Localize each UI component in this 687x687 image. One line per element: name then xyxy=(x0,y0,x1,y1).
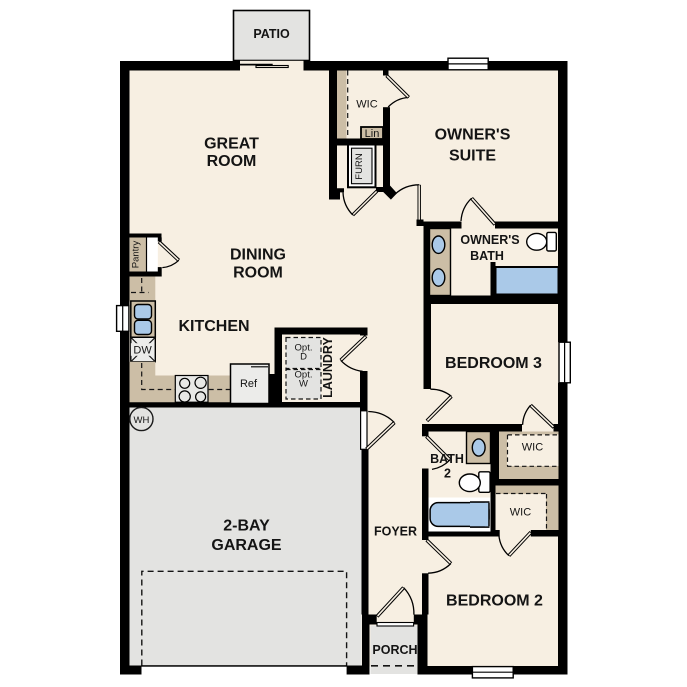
svg-text:D: D xyxy=(300,352,307,363)
svg-text:LAUNDRY: LAUNDRY xyxy=(321,337,335,398)
svg-text:FOYER: FOYER xyxy=(374,525,417,539)
svg-text:W: W xyxy=(299,379,308,390)
svg-text:BEDROOM 3: BEDROOM 3 xyxy=(445,355,542,372)
svg-text:KITCHEN: KITCHEN xyxy=(178,318,249,335)
svg-text:ROOM: ROOM xyxy=(233,265,283,282)
svg-text:ROOM: ROOM xyxy=(207,153,257,170)
svg-text:PATIO: PATIO xyxy=(253,27,290,41)
svg-text:WIC: WIC xyxy=(510,507,531,519)
svg-text:Ref: Ref xyxy=(240,378,258,390)
svg-text:SUITE: SUITE xyxy=(449,148,496,165)
svg-text:DINING: DINING xyxy=(230,247,286,264)
svg-text:PORCH: PORCH xyxy=(372,643,417,657)
svg-text:BATH: BATH xyxy=(470,249,504,263)
svg-text:GARAGE: GARAGE xyxy=(211,537,282,554)
svg-text:FURN: FURN xyxy=(354,153,365,180)
svg-text:WIC: WIC xyxy=(356,99,377,111)
svg-text:DW: DW xyxy=(133,344,152,356)
svg-text:Lin: Lin xyxy=(365,128,380,140)
svg-text:BATH: BATH xyxy=(430,452,464,466)
svg-text:2: 2 xyxy=(444,467,451,481)
svg-text:OWNER'S: OWNER'S xyxy=(435,127,511,144)
svg-text:OWNER'S: OWNER'S xyxy=(460,233,519,247)
svg-text:WIC: WIC xyxy=(522,442,543,454)
svg-text:2-BAY: 2-BAY xyxy=(223,518,270,535)
svg-text:GREAT: GREAT xyxy=(204,136,259,153)
svg-text:Pantry: Pantry xyxy=(131,241,142,269)
svg-text:WH: WH xyxy=(133,415,149,426)
svg-text:BEDROOM 2: BEDROOM 2 xyxy=(446,593,543,610)
